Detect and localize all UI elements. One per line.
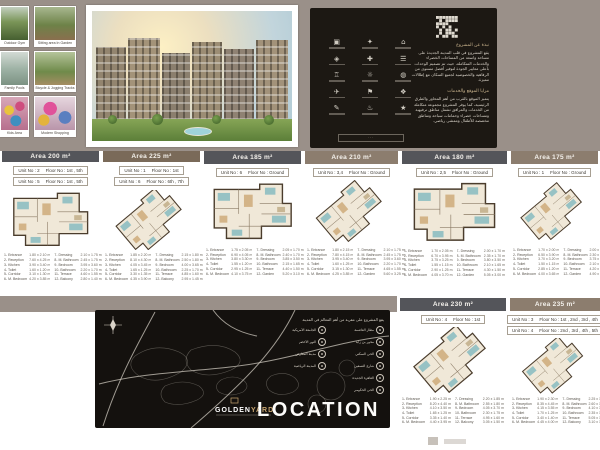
legend-circle-icon (376, 362, 384, 370)
legend-label: القاهرة الجديدة (352, 376, 374, 380)
partner-logo-icon-1: ▣ (320, 38, 353, 49)
room-schedule-item: 12- Garden5.60 x 3.25 m (357, 272, 404, 277)
partner-logo-label (329, 47, 345, 49)
legend-label: مطار العاصمة (354, 328, 374, 332)
room-schedule-column: 7- Dressing2.00 x 1.70 m8- M. Bathroom2.… (457, 249, 506, 294)
unit-info-row: Unit No : 1Floor No : Ground (518, 168, 591, 177)
room-schedule-column: 7- Dressing2.20 x 1.85 m8- M. Bathroom2.… (455, 397, 504, 442)
plan-area-header: Area 200 m² (2, 151, 99, 162)
floor-number: Floor No : 1st (152, 168, 179, 173)
room-name: 6- M. Bedroom (4, 277, 27, 282)
floor-number: Floor No : Ground (550, 170, 586, 175)
floor-number: Floor No : Ground (452, 170, 488, 175)
floor-plan-area (510, 335, 600, 397)
room-name: 12- Garden (563, 272, 581, 277)
amenity-logo-grid: ▣✦⌂◈✚☰♖☼◍✈⚑❖✎♨★ (320, 38, 420, 115)
floor-plan-area (511, 177, 598, 248)
legend-label: محور بن زايد (356, 340, 374, 344)
plan-area-header: Area 225 m² (103, 151, 200, 162)
room-schedule-item: 6- M. Bedroom4.20 x 3.85 m (4, 277, 50, 282)
unit-number: Unit No : 3 (512, 317, 533, 322)
partner-logo-label (329, 64, 345, 66)
location-legend: يقع المشروع على مقربة من أهم المعالم في … (274, 317, 384, 394)
unit-info-row: Unit No : 5Floor No : 1st , 5th (13, 177, 87, 186)
amenity-photo (35, 52, 75, 85)
partner-logo-glyph: ♖ (334, 71, 340, 79)
plan-panel-area-210-m²: Area 210 m²Unit No : 3,4Floor No : Groun… (305, 151, 398, 296)
room-schedule-item: 6- M. Bedroom4.35 x 3.90 m (105, 277, 151, 282)
legend-heading: يقع المشروع على مقربة من أهم المعالم في … (274, 317, 384, 322)
room-dimensions: 5.05 x 3.00 m (484, 273, 505, 278)
room-schedule: 1- Entrance1.80 x 2.10 m2- Reception7.60… (2, 253, 99, 296)
legend-circle-icon (376, 386, 384, 394)
partner-logo-glyph: ✈ (334, 88, 340, 96)
legend-label: الحي السكني (355, 352, 374, 356)
pool (184, 127, 212, 136)
room-name: 12- Balcony (455, 420, 473, 425)
unit-info-row: Unit No : 3Floor No : 1st , 2nd , 3rd , … (507, 315, 600, 324)
unit-info-rows: Unit No : 2,5Floor No : Ground (402, 168, 507, 177)
room-schedule-item: 12- Garden5.05 x 3.00 m (457, 273, 506, 278)
footer-logos (428, 437, 466, 445)
partner-logo-glyph: ✚ (367, 55, 373, 63)
unit-info-row: Unit No : 4Floor No : 1st (421, 315, 485, 324)
partner-logo-glyph: ✎ (334, 104, 340, 112)
amenity-photo-card: Kids Area (0, 96, 29, 137)
floor-plan-area (402, 177, 507, 249)
room-dimensions: 4.40 x 3.95 m (430, 420, 451, 425)
room-schedule: 1- Entrance1.85 x 2.20 m2- Reception8.10… (103, 253, 200, 296)
amenity-photo-caption: Outdoor Gym (1, 40, 28, 46)
floor-plan-area (204, 177, 301, 248)
project-info-panel: ▣✦⌂◈✚☰♖☼◍✈⚑❖✎♨★ ··· نبذة عن المشروع يقع … (310, 8, 497, 148)
project-description: نبذة عن المشروع يقع المشروع في قلب المدي… (411, 42, 489, 129)
partner-logo-glyph: ◈ (334, 55, 339, 63)
qr-code-icon (436, 16, 458, 38)
partner-logo-label (362, 47, 378, 49)
unit-info-rows: Unit No : 6Floor No : Ground (204, 168, 301, 177)
floor-plan-drawing (7, 190, 94, 250)
building-block (96, 47, 126, 120)
plan-area-header: Area 180 m² (402, 151, 507, 164)
unit-info-rows: Unit No : 3Floor No : 1st , 2nd , 3rd , … (510, 315, 600, 335)
plan-panel-area-185-m²: Area 185 m²Unit No : 6Floor No : Ground1… (204, 151, 301, 296)
room-name: 6- M. Bedroom (513, 272, 536, 277)
amenity-photo-card: Sitting area In Garden (34, 6, 76, 47)
room-schedule-column: 1- Entrance1.85 x 2.20 m2- Reception8.10… (105, 253, 151, 294)
footer-logo-icon (444, 439, 466, 444)
legend-circle-icon (376, 350, 384, 358)
amenity-photo (1, 52, 28, 85)
room-schedule-item: 12- Balcony2.95 x 1.45 m (155, 277, 202, 282)
amenity-photo-caption: Sitting area In Garden (35, 40, 75, 46)
unit-info-rows: Unit No : 2Floor No : 1st , 5thUnit No :… (2, 166, 99, 186)
partner-logo-glyph: ♨ (367, 104, 373, 112)
floor-number: Floor No : 1st , 2nd , 3rd , 4th (539, 317, 598, 322)
legend-circle-icon (318, 326, 326, 334)
amenity-photo-card: Bicycle & Jogging Tracks (34, 51, 76, 92)
partner-logo-icon-4: ◈ (320, 55, 353, 66)
building-block (128, 38, 160, 120)
plan-panel-area-180-m²: Area 180 m²Unit No : 2,5Floor No : Groun… (402, 151, 507, 296)
room-schedule-column: 1- Entrance1.90 x 2.30 m2- Reception8.35… (512, 397, 558, 442)
legend-item: الحي السكني (332, 350, 384, 358)
compass-icon (104, 316, 122, 334)
room-schedule-item: 6- M. Bedroom4.25 x 3.85 m (307, 272, 353, 277)
legend-label: مدينة المعارض (295, 352, 316, 356)
legend-item: الحي الحكومي (332, 386, 384, 394)
brand-banner: ··· (338, 134, 404, 142)
partner-logo-icon-11: ⚑ (353, 88, 386, 99)
room-dimensions: 4.10 x 3.75 m (231, 272, 252, 277)
legend-item: القاهرة الجديدة (332, 374, 384, 382)
amenity-photo-caption: Modern Shopping (35, 130, 75, 136)
legend-columns: مطار العاصمةمحور بن زايدالحي السكنيشارع … (274, 326, 384, 394)
room-dimensions: 3.10 x 1.50 m (589, 420, 600, 425)
room-schedule-column: 1- Entrance1.80 x 2.10 m2- Reception7.60… (4, 253, 50, 294)
partner-logo-glyph: ⌂ (401, 38, 405, 46)
room-schedule: 1- Entrance1.70 x 2.05 m2- Reception6.70… (402, 249, 507, 296)
room-dimensions: 4.25 x 3.85 m (332, 272, 353, 277)
partner-logo-label (362, 97, 378, 99)
partner-logo-glyph: ❖ (400, 88, 406, 96)
partner-logo-glyph: ⚑ (367, 88, 373, 96)
plan-area-header: Area 235 m² (510, 298, 600, 311)
room-schedule-column: 1- Entrance1.70 x 2.00 m2- Reception6.50… (513, 248, 559, 294)
legend-item: النهر الأخضر (274, 338, 326, 346)
legend-item: شارع التسعين (332, 362, 384, 370)
room-schedule-item: 12- Garden4.90 x 2.95 m (563, 272, 600, 277)
partner-logo-label (395, 80, 411, 82)
legend-label: الجامعة الأمريكية (292, 328, 316, 332)
room-schedule-column: 7- Dressing2.05 x 1.70 m8- M. Bathroom2.… (256, 248, 303, 294)
legend-label: الحي الحكومي (354, 388, 375, 392)
floor-number: Floor No : 1st , 5th (46, 179, 83, 184)
floor-plan-area (2, 186, 99, 253)
amenity-photo-card: Outdoor Gym (0, 6, 29, 47)
unit-number: Unit No : 4 (512, 328, 533, 333)
room-name: 12- Garden (256, 272, 274, 277)
location-title: LOCATION (257, 399, 380, 422)
floor-plan-drawing (407, 180, 502, 246)
room-schedule-item: 6- M. Bedroom4.45 x 4.00 m (512, 420, 558, 425)
room-name: 12- Garden (357, 272, 375, 277)
legend-circle-icon (318, 338, 326, 346)
room-dimensions: 3.05 x 1.50 m (483, 420, 504, 425)
room-schedule-column: 7- Dressing2.10 x 1.75 m8- M. Bathroom2.… (357, 248, 404, 294)
plan-area-header: Area 230 m² (400, 298, 506, 311)
room-schedule-item: 6- M. Bedroom4.05 x 3.70 m (404, 273, 453, 278)
unit-info-row: Unit No : 4Floor No : 2nd , 3rd , 4th , … (507, 326, 600, 335)
amenity-photo-card: Family Pools (0, 51, 29, 92)
unit-info-rows: Unit No : 4Floor No : 1st (400, 315, 506, 324)
plan-panel-area-230-m²: Area 230 m²Unit No : 4Floor No : 1st1- E… (400, 298, 506, 444)
brochure-page: Outdoor GymSitting area In GardenFamily … (0, 0, 600, 450)
floor-plan-area (103, 186, 200, 253)
room-schedule-item: 12- Balcony3.05 x 1.50 m (455, 420, 504, 425)
brand-banner-label: ··· (368, 136, 375, 140)
partner-logo-glyph: ☼ (367, 71, 373, 79)
room-schedule-item: 6- M. Bedroom4.10 x 3.75 m (206, 272, 252, 277)
unit-number: Unit No : 6 (119, 179, 140, 184)
unit-info-row: Unit No : 2,5Floor No : Ground (416, 168, 493, 177)
unit-info-rows: Unit No : 3,4Floor No : Ground (305, 168, 398, 177)
room-schedule: 1- Entrance1.75 x 2.05 m2- Reception6.90… (204, 248, 301, 296)
unit-number: Unit No : 5 (18, 179, 39, 184)
room-schedule-column: 7- Dressing2.15 x 1.80 m8- M. Bathroom2.… (155, 253, 202, 294)
room-name: 12- Balcony (562, 420, 580, 425)
plan-panel-area-200-m²: Area 200 m²Unit No : 2Floor No : 1st , 5… (2, 151, 99, 296)
partner-logo-glyph: ▣ (333, 38, 340, 46)
partner-logo-icon-10: ✈ (320, 88, 353, 99)
room-schedule-item: 12- Balcony3.10 x 1.50 m (562, 420, 600, 425)
floor-number: Floor No : 6th , 7th (146, 179, 183, 184)
partner-logo-label (362, 113, 378, 115)
room-schedule-column: 1- Entrance1.80 x 2.15 m2- Reception7.80… (307, 248, 353, 294)
unit-info-row: Unit No : 6Floor No : Ground (216, 168, 289, 177)
project-features-heading: مزايا الموقع والخدمات (411, 88, 489, 95)
room-dimensions: 2.95 x 1.45 m (182, 277, 203, 282)
room-schedule-column: 7- Dressing2.10 x 1.75 m8- M. Bathroom2.… (54, 253, 101, 294)
legend-circle-icon (318, 362, 326, 370)
plan-area-header: Area 175 m² (511, 151, 598, 164)
room-schedule: 1- Entrance1.90 x 2.30 m2- Reception8.35… (510, 397, 600, 444)
building-render-image (92, 11, 292, 141)
unit-number: Unit No : 1 (124, 168, 145, 173)
unit-number: Unit No : 2,5 (421, 170, 446, 175)
floor-plan-drawing (515, 338, 596, 394)
building-block (256, 40, 288, 121)
floor-number: Floor No : 1st (453, 317, 480, 322)
room-dimensions: 4.00 x 3.65 m (538, 272, 559, 277)
project-about-paragraph: يقع المشروع في قلب المدينة الجديدة على م… (411, 50, 489, 82)
room-schedule-column: 7- Dressing2.00 x 1.65 m8- M. Bathroom2.… (563, 248, 600, 294)
partner-logo-label (329, 97, 345, 99)
amenity-photo-card: Modern Shopping (34, 96, 76, 137)
room-schedule-item: 12- Balcony2.80 x 1.40 m (54, 277, 101, 282)
amenity-photo-caption: Kids Area (1, 130, 28, 136)
legend-item: الجامعة الأمريكية (274, 326, 326, 334)
room-name: 12- Balcony (54, 277, 72, 282)
partner-logo-label (395, 47, 411, 49)
legend-column-1: مطار العاصمةمحور بن زايدالحي السكنيشارع … (332, 326, 384, 394)
room-schedule-column: 1- Entrance1.75 x 2.05 m2- Reception6.90… (206, 248, 252, 294)
unit-number: Unit No : 1 (523, 170, 544, 175)
floor-plan-area (400, 324, 506, 397)
unit-info-rows: Unit No : 1Floor No : Ground (511, 168, 598, 177)
project-features-paragraph: يتميز الموقع بالقرب من أهم المحاور والطر… (411, 96, 489, 123)
room-dimensions: 5.20 x 3.10 m (283, 272, 304, 277)
floor-plan-area (305, 177, 398, 248)
partner-logo-icon-7: ♖ (320, 71, 353, 82)
building-render-card (86, 5, 298, 147)
unit-number: Unit No : 3,4 (318, 170, 343, 175)
room-dimensions: 2.80 x 1.40 m (81, 277, 102, 282)
partner-logo-icon-13: ✎ (320, 104, 353, 115)
legend-label: النهر الأخضر (299, 340, 316, 344)
amenity-photo-caption: Family Pools (1, 85, 28, 91)
partner-logo-glyph: ✦ (367, 38, 373, 46)
unit-info-rows: Unit No : 1Floor No : 1stUnit No : 6Floo… (103, 166, 200, 186)
legend-item: المدينة الرياضية (274, 362, 326, 370)
room-name: 6- M. Bedroom (206, 272, 229, 277)
building-block (224, 49, 254, 121)
partner-logo-icon-2: ✦ (353, 38, 386, 49)
floor-number: Floor No : Ground (248, 170, 284, 175)
partner-logo-glyph: ◍ (400, 71, 406, 79)
room-dimensions: 4.20 x 3.85 m (29, 277, 50, 282)
location-panel: GOLDENYARD يقع المشروع على مقربة من أهم … (95, 310, 390, 428)
legend-label: شارع التسعين (354, 364, 374, 368)
partner-logo-label (329, 80, 345, 82)
room-schedule: 1- Entrance1.70 x 2.00 m2- Reception6.50… (511, 248, 598, 296)
partner-logo-icon-5: ✚ (353, 55, 386, 66)
plan-panel-area-225-m²: Area 225 m²Unit No : 1Floor No : 1stUnit… (103, 151, 200, 296)
floor-plan-drawing (310, 180, 394, 244)
unit-info-row: Unit No : 2Floor No : 1st , 5th (13, 166, 87, 175)
floor-plan-drawing (108, 190, 195, 250)
room-schedule-item: 12- Garden5.20 x 3.10 m (256, 272, 303, 277)
plan-area-header: Area 185 m² (204, 151, 301, 164)
floor-plan-drawing (405, 327, 501, 393)
floor-number: Floor No : Ground (349, 170, 385, 175)
room-dimensions: 4.90 x 2.95 m (590, 272, 600, 277)
project-about-heading: نبذة عن المشروع (411, 42, 489, 49)
amenity-photo (35, 97, 75, 130)
legend-column-2: الجامعة الأمريكيةالنهر الأخضرمدينة المعا… (274, 326, 326, 394)
room-schedule-item: 6- M. Bedroom4.00 x 3.65 m (513, 272, 559, 277)
footer-logo-icon (428, 437, 438, 445)
partner-logo-label (395, 113, 411, 115)
unit-info-row: Unit No : 3,4Floor No : Ground (313, 168, 390, 177)
amenity-photo (1, 97, 28, 130)
partner-logo-label (329, 113, 345, 115)
room-dimensions: 4.35 x 3.90 m (130, 277, 151, 282)
unit-number: Unit No : 6 (221, 170, 242, 175)
plan-panel-area-235-m²: Area 235 m²Unit No : 3Floor No : 1st , 2… (510, 298, 600, 444)
room-schedule-column: 7- Dressing2.25 x 1.85 m8- M. Bathroom2.… (562, 397, 600, 442)
partner-logo-glyph: ★ (400, 104, 406, 112)
room-name: 6- M. Bedroom (512, 420, 535, 425)
floor-number: Floor No : 1st , 5th (46, 168, 83, 173)
unit-info-row: Unit No : 6Floor No : 6th , 7th (114, 177, 189, 186)
partner-logo-label (395, 97, 411, 99)
room-schedule-column: 1- Entrance1.90 x 2.25 m2- Reception8.20… (402, 397, 451, 442)
partner-logo-icon-14: ♨ (353, 104, 386, 115)
plan-panel-area-175-m²: Area 175 m²Unit No : 1Floor No : Ground1… (511, 151, 598, 296)
floor-number: Floor No : 2nd , 3rd , 4th , 5th (539, 328, 598, 333)
unit-info-row: Unit No : 1Floor No : 1st (119, 166, 183, 175)
legend-circle-icon (376, 338, 384, 346)
partner-logo-label (395, 64, 411, 66)
room-name: 6- M. Bedroom (105, 277, 128, 282)
room-schedule: 1- Entrance1.80 x 2.15 m2- Reception7.80… (305, 248, 398, 296)
room-dimensions: 4.05 x 3.70 m (431, 273, 452, 278)
room-name: 12- Balcony (155, 277, 173, 282)
room-name: 12- Garden (457, 273, 475, 278)
building-block (192, 42, 222, 120)
building-block (162, 53, 190, 121)
room-schedule-item: 6- M. Bedroom4.40 x 3.95 m (402, 420, 451, 425)
partner-logo-label (362, 80, 378, 82)
partner-logo-icon-8: ☼ (353, 71, 386, 82)
room-name: 6- M. Bedroom (404, 273, 427, 278)
unit-number: Unit No : 2 (18, 168, 39, 173)
floor-plan-drawing (515, 180, 593, 244)
legend-item: محور بن زايد (332, 338, 384, 346)
amenity-photo (1, 7, 28, 40)
amenity-photo (35, 7, 75, 40)
partner-logo-label (362, 64, 378, 66)
plan-area-header: Area 210 m² (305, 151, 398, 164)
legend-circle-icon (376, 374, 384, 382)
legend-circle-icon (318, 350, 326, 358)
room-name: 6- M. Bedroom (402, 420, 425, 425)
room-dimensions: 4.45 x 4.00 m (537, 420, 558, 425)
partner-logo-glyph: ☰ (400, 55, 406, 63)
room-name: 6- M. Bedroom (307, 272, 330, 277)
legend-item: مدينة المعارض (274, 350, 326, 358)
room-schedule-column: 1- Entrance1.70 x 2.05 m2- Reception6.70… (404, 249, 453, 294)
floor-plan-drawing (209, 180, 296, 244)
legend-item: مطار العاصمة (332, 326, 384, 334)
unit-number: Unit No : 4 (426, 317, 447, 322)
legend-label: المدينة الرياضية (294, 364, 316, 368)
legend-circle-icon (376, 326, 384, 334)
amenity-photo-grid: Outdoor GymSitting area In GardenFamily … (0, 6, 80, 137)
amenity-photo-caption: Bicycle & Jogging Tracks (35, 85, 75, 91)
